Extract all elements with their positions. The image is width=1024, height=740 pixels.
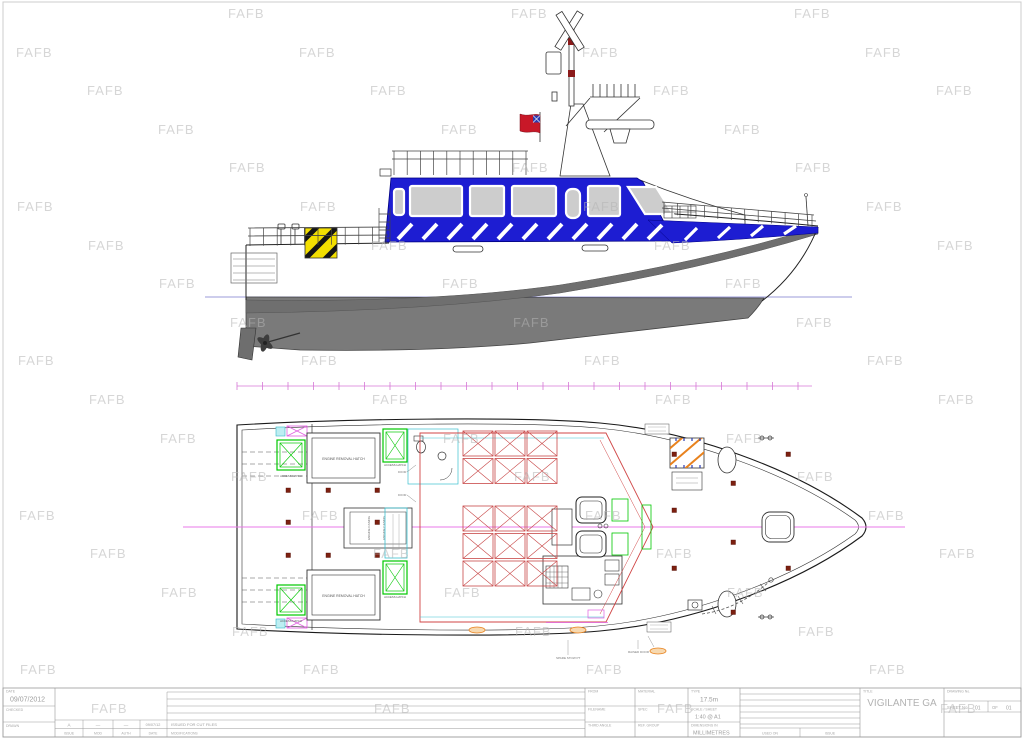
ga-drawing-sheet: ENGINE REMOVAL HATCH ENGINE REMOVAL HATC… [0,0,1024,740]
dims-value: MILLIMETRES [693,731,730,737]
mast-tower [560,104,610,176]
deck-socket [286,488,291,493]
mast-assembly [546,11,654,176]
date-value: 09/07/2012 [10,697,45,704]
drawing-title: VIGILANTE GA [867,698,937,709]
sheet-no-value: 01 [975,706,981,712]
deck-socket [786,452,791,457]
drawn-label: DRAWN [6,724,20,728]
issue-label: ISSUE [825,732,836,736]
helm-seat [576,531,606,557]
deck-socket [326,488,331,493]
rev-issue: A [67,723,70,728]
title-block: DATE 09/07/2012 CHECKED DRAWN A — — 09/0… [3,688,1021,737]
window-aft [394,189,404,215]
deck-socket [286,520,291,525]
door-label: DOOR [398,493,406,497]
bow-staff [806,197,808,226]
window-1 [410,186,462,216]
oval-hatch [718,447,736,473]
ref-group-label: REF. GROUP [638,724,660,728]
type-label: TYPE [691,690,701,694]
deck-socket [672,566,677,571]
deck-socket [375,553,380,558]
transom-ladder [231,253,277,283]
mast-band [568,70,575,77]
rev-header-mod: MOD [94,732,102,736]
from-label: FROM [588,690,598,694]
hatch-label: ENGINE REMOVAL HATCH [322,594,365,598]
drawing-no-label: DRAWING No. [947,690,970,694]
galley [543,556,622,604]
spec-label: SPEC [638,708,648,712]
window-2 [470,186,504,216]
plan-note: SPARE STOW PT [556,656,581,660]
deck-socket [375,520,380,525]
rev-mod: — [96,723,101,728]
rev-modification: ISSUED FOR CUT FILES [171,722,217,727]
door-label: DOOR [398,470,406,474]
rev-date: 09/07/12 [146,723,161,727]
stern-fitting [276,427,285,436]
nav-light [552,92,557,101]
of-value: 01 [1006,706,1012,712]
dims-label: DIMENSIONS IN [691,724,718,728]
scale-value: 1:40 @ A1 [695,715,721,721]
date-label: DATE [6,690,16,694]
hatch-label: ENGINE REMOVAL HATCH [322,457,365,461]
rev-header-auth: AUTH [121,732,131,736]
ga-drawing: ENGINE REMOVAL HATCH ENGINE REMOVAL HATC… [0,0,1024,740]
deck-socket [786,566,791,571]
rev-header-issue: ISSUE [64,732,75,736]
access-hatch-label: ACCESS HATCH [280,474,302,478]
deck-socket [375,488,380,493]
radar-pedestal [610,129,630,143]
rudder [238,328,256,360]
forward-hatch [762,512,794,542]
filename-label: FILENAME [588,708,606,712]
deck-socket [731,481,736,486]
checked-label: CHECKED [6,708,24,712]
deck-socket [731,540,736,545]
radar-reflector [546,52,561,74]
roof-fitting [380,169,391,176]
title-label: TITLE [863,690,873,694]
used-on-label: USED ON [762,732,778,736]
ensign-flag [520,112,540,142]
access-hatch-label: ACCESS HATCH [384,595,406,599]
deck-socket [672,452,677,457]
windlass [688,600,702,610]
engine-removal-hatch: ENGINE REMOVAL HATCH [307,570,380,620]
rev-header-modifications: MODIFICATIONS [171,732,198,736]
deck-socket [326,553,331,558]
scupper [582,245,608,251]
engine-removal-hatch: ENGINE REMOVAL HATCH [307,433,380,483]
table [552,509,572,545]
access-hatch-label: ACCESS HATCH [280,619,302,623]
scale-label: SCALE / SHEET [691,708,718,712]
window-4 [588,186,620,216]
access-hatch-label: ACCESS HATCH [384,463,406,467]
sheet-no-label: SHEET No. [947,705,969,710]
deck-socket [286,553,291,558]
plan-note: RAISED DOOR [628,650,650,654]
plan-view: ENGINE REMOVAL HATCH ENGINE REMOVAL HATC… [183,419,905,660]
radar-array [586,120,654,129]
bollards [278,224,299,244]
of-label: OF [992,705,998,710]
rev-header-date: DATE [149,732,159,736]
casing-label: ENGINE CASING [367,515,371,540]
door-window [566,189,580,218]
scupper [453,246,483,252]
projection-label: THIRD ANGLE [588,724,612,728]
type-value: 17.5m [700,697,718,704]
window-3 [512,186,556,216]
station-dimension-line [237,382,812,390]
profile-view [205,11,852,360]
deck-socket [731,610,736,615]
deck-socket [672,508,677,513]
material-label: MATERIAL [638,690,655,694]
helm-seat [576,497,606,523]
engine-casing: ENGINE CASING ENGINE CASING [344,508,412,548]
rev-auth: — [124,723,129,728]
